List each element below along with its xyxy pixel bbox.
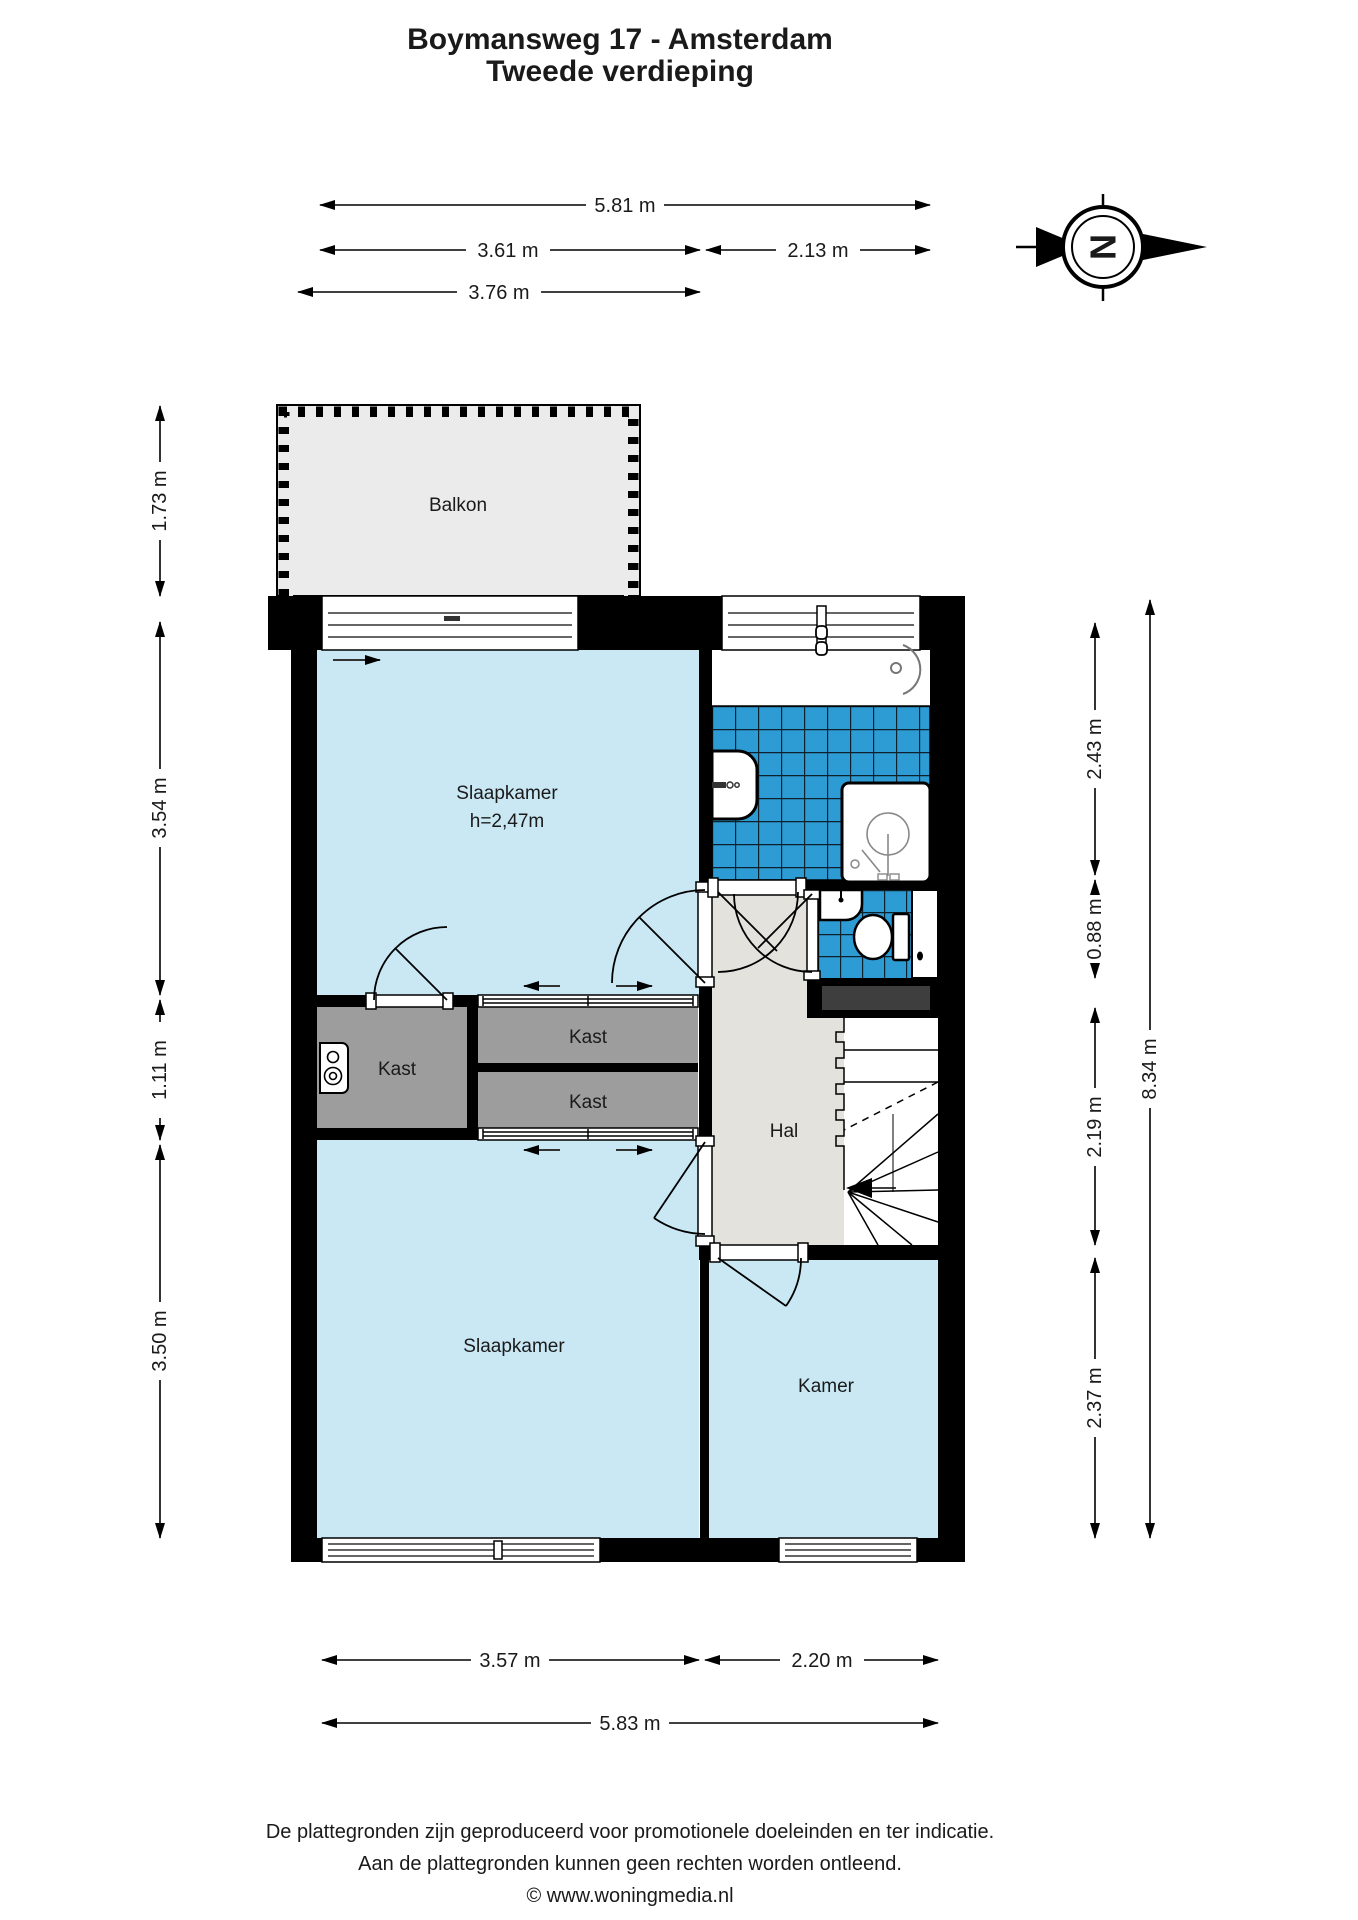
bedroom-top-height-label: h=2,47m: [470, 811, 544, 832]
dim-label: 5.83 m: [599, 1713, 660, 1735]
closet-top-label: Kast: [569, 1027, 608, 1048]
toilet-side-recess: [912, 890, 938, 978]
toilet-sink-icon: [820, 890, 862, 920]
dim-right-bathroom: 2.43 m: [1084, 623, 1106, 875]
dim-label: 2.13 m: [787, 240, 848, 262]
footer-copyright: © www.woningmedia.nl: [0, 1880, 1260, 1912]
dim-label: 8.34 m: [1139, 1038, 1161, 1099]
sink-icon: [712, 751, 757, 819]
dim-top-balcony: 3.76 m: [298, 282, 700, 304]
dim-right-full: 8.34 m: [1139, 600, 1161, 1538]
title-address: Boymansweg 17 - Amsterdam: [0, 24, 1240, 56]
kamer-floor: [709, 1260, 938, 1538]
kamer-window: [779, 1538, 917, 1562]
hall-label: Hal: [770, 1121, 799, 1142]
dim-top-right: 2.13 m: [706, 240, 930, 262]
footer-line-1: De plattegronden zijn geproduceerd voor …: [0, 1816, 1260, 1848]
dim-label: 2.37 m: [1084, 1367, 1106, 1428]
footer-disclaimer: De plattegronden zijn geproduceerd voor …: [0, 1816, 1260, 1912]
boiler-icon: [320, 1043, 348, 1093]
closet-left-label: Kast: [378, 1059, 417, 1080]
compass: N: [1016, 194, 1207, 301]
dim-bottom-right: 2.20 m: [705, 1650, 938, 1672]
duct-shaft: [822, 986, 930, 1010]
dim-label: 3.61 m: [477, 240, 538, 262]
dim-bottom-full: 5.83 m: [322, 1713, 938, 1735]
dim-label: 1.11 m: [149, 1040, 171, 1100]
closet-top-sliding-door: [478, 995, 698, 1007]
dim-top-left: 3.61 m: [320, 240, 700, 262]
shower-icon: [842, 783, 930, 882]
dim-bottom-left: 3.57 m: [322, 1650, 699, 1672]
dim-right-room: 2.37 m: [1084, 1258, 1106, 1538]
compass-letter: N: [1083, 234, 1124, 260]
balcony-sliding-door: [322, 596, 578, 650]
dim-right-toilet: 0.88 m: [1084, 880, 1106, 978]
dim-left-bedroom-bottom: 3.50 m: [149, 1145, 171, 1538]
kamer-label: Kamer: [798, 1376, 855, 1397]
dim-label: 2.19 m: [1084, 1096, 1106, 1157]
dim-left-bedroom-top: 3.54 m: [149, 622, 171, 995]
bathroom-upper-floor: [712, 650, 930, 706]
floorplan-page: Boymansweg 17 - Amsterdam Tweede verdiep…: [0, 0, 1358, 1920]
hall-floor-2: [807, 1018, 844, 1245]
title-floor: Tweede verdieping: [0, 56, 1240, 88]
bedroom-bottom-label: Slaapkamer: [463, 1336, 565, 1357]
footer-line-2: Aan de plattegronden kunnen geen rechten…: [0, 1848, 1260, 1880]
dim-left-balcony: 1.73 m: [149, 406, 171, 596]
floorplan-drawing: N Balkon: [0, 0, 1358, 1920]
dim-label: 3.50 m: [149, 1310, 171, 1371]
dim-label: 3.57 m: [479, 1650, 540, 1672]
balcony: Balkon: [277, 405, 640, 596]
dim-left-closet: 1.11 m: [149, 1000, 171, 1140]
bedroom-bottom-window: [322, 1538, 600, 1562]
dim-right-hall: 2.19 m: [1084, 1008, 1106, 1245]
dim-top-full: 5.81 m: [320, 195, 930, 217]
dim-label: 5.81 m: [594, 195, 655, 217]
dim-label: 1.73 m: [149, 470, 171, 531]
bedroom-top-label: Slaapkamer: [456, 783, 558, 804]
dim-label: 2.43 m: [1084, 718, 1106, 779]
balcony-label: Balkon: [429, 495, 487, 516]
dim-label: 0.88 m: [1084, 898, 1106, 959]
closet-bottom-sliding-door: [478, 1128, 698, 1140]
page-title: Boymansweg 17 - Amsterdam Tweede verdiep…: [0, 24, 1240, 88]
dim-label: 3.76 m: [468, 282, 529, 304]
dim-label: 2.20 m: [791, 1650, 852, 1672]
dim-label: 3.54 m: [149, 777, 171, 838]
toilet-icon: [854, 914, 909, 960]
closet-bottom-label: Kast: [569, 1092, 608, 1113]
